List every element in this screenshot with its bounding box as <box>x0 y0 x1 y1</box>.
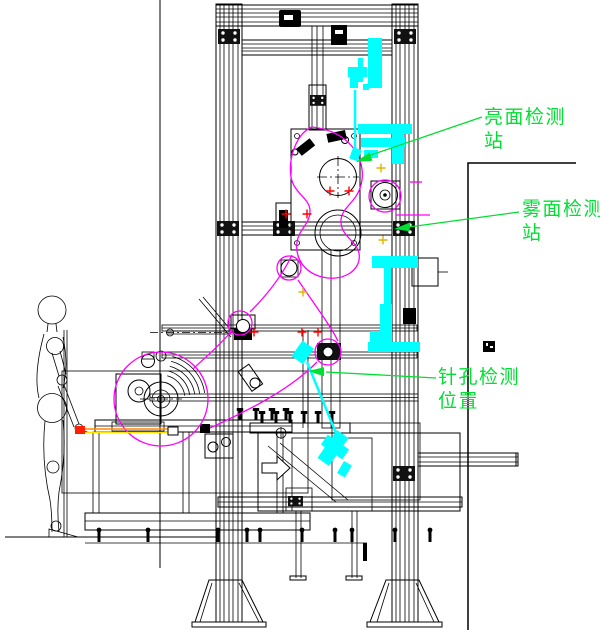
inspection-plate <box>276 129 360 428</box>
label-bright-line1: 亮面检测 <box>484 106 566 128</box>
corner-connector <box>394 29 416 44</box>
machine-drawing: 亮面检测 站 雾面检测 站 针孔检测 位置 <box>0 0 600 630</box>
frame-mid-beam <box>217 221 415 236</box>
unwind-reel <box>112 351 233 458</box>
corner-connector <box>218 29 240 44</box>
film-strip-red-end <box>75 426 85 434</box>
label-pinhole-line1: 针孔检测 <box>438 366 520 388</box>
label-matte-line2: 站 <box>522 222 543 244</box>
plate-hanger-post <box>309 26 326 130</box>
beam-clamp <box>331 25 347 45</box>
label-matte-line1: 雾面检测 <box>522 198 600 220</box>
leader-pinhole <box>326 372 436 378</box>
guide-rollers <box>231 156 448 391</box>
cad-drawing-canvas: 亮面检测 站 雾面检测 站 针孔检测 位置 <box>0 0 600 630</box>
label-pinhole-line2: 位置 <box>438 390 479 412</box>
label-bright-line2: 站 <box>484 130 505 152</box>
block-symbol-icon <box>483 341 495 352</box>
leader-bright <box>362 117 482 158</box>
unwind-table <box>62 330 310 542</box>
film-strip-cap <box>168 427 178 435</box>
red-datum-marks <box>250 187 354 337</box>
top-motor <box>279 10 301 27</box>
operator-mannequin <box>37 296 90 537</box>
leader-matte <box>409 212 519 227</box>
machine-frame <box>5 0 576 630</box>
machine-table <box>250 411 460 580</box>
frame-feet <box>192 580 442 627</box>
flow-direction-arrow-icon <box>262 456 290 480</box>
